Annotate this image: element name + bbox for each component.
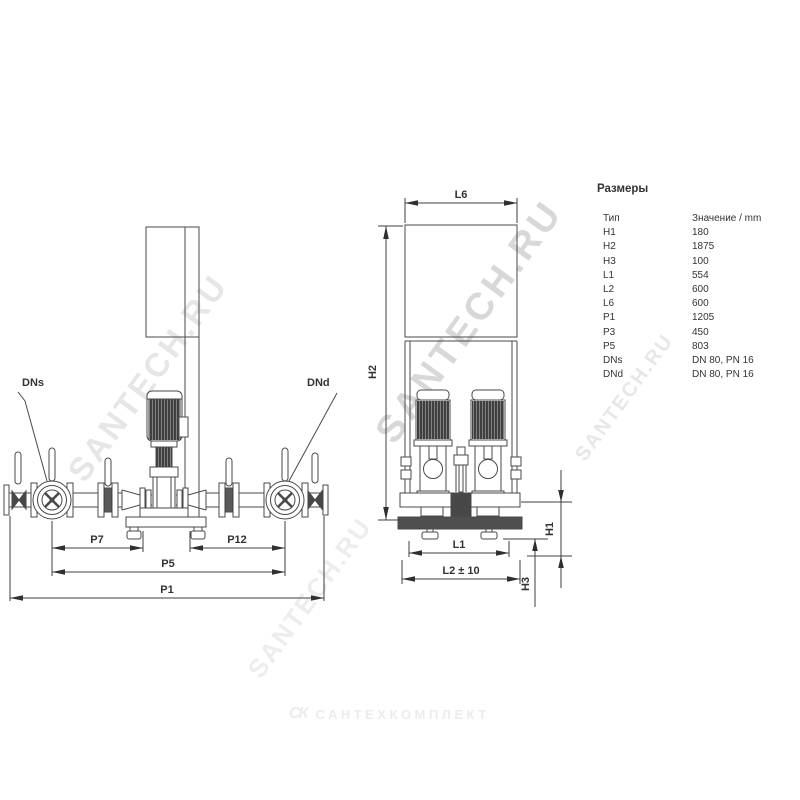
table-row: H1180 <box>597 226 797 240</box>
dim-l6: L6 <box>455 189 468 201</box>
footer-logo: СК САНТЕХКОМПЛЕКТ <box>289 705 490 723</box>
table-row: DNdDN 80, PN 16 <box>597 368 797 382</box>
table-row: P3450 <box>597 326 797 340</box>
table-row: H3100 <box>597 255 797 269</box>
dim-h1: H1 <box>544 522 556 536</box>
side-view <box>398 225 522 539</box>
drawing-canvas: SANTECH.RU SANTECH.RU SANTECH.RU SANTECH… <box>0 0 800 800</box>
label-dnd: DNd <box>307 377 330 389</box>
table-row: P11205 <box>597 311 797 325</box>
dim-p12: P12 <box>227 534 247 546</box>
dimensions-table-title: Размеры <box>597 183 797 195</box>
table-row: L6600 <box>597 297 797 311</box>
side-view-pump-2 <box>469 390 507 496</box>
table-header-value: Значение / mm <box>692 212 797 226</box>
dim-p5: P5 <box>161 558 174 570</box>
dim-h3: H3 <box>520 577 532 591</box>
pump-set-technical-drawing <box>0 0 800 800</box>
label-dns: DNs <box>22 377 44 389</box>
table-header-row: Тип Значение / mm <box>597 212 797 226</box>
dim-l1: L1 <box>453 539 466 551</box>
table-row: L2600 <box>597 283 797 297</box>
side-view-pump-1 <box>414 390 452 496</box>
table-row: H21875 <box>597 240 797 254</box>
front-view <box>4 227 337 539</box>
dimensions-table: Размеры Тип Значение / mm H1180 H21875 H… <box>597 183 797 382</box>
table-header-type: Тип <box>603 212 692 226</box>
dim-l2: L2 ± 10 <box>442 565 479 577</box>
dim-p1: P1 <box>160 584 173 596</box>
table-row: L1554 <box>597 269 797 283</box>
table-row: DNsDN 80, PN 16 <box>597 354 797 368</box>
dim-p7: P7 <box>90 534 103 546</box>
santehkomplekt-logo-text: САНТЕХКОМПЛЕКТ <box>315 707 489 722</box>
dim-h2: H2 <box>367 365 379 379</box>
santehkomplekt-logo-icon: СК <box>289 705 306 723</box>
table-row: P5803 <box>597 340 797 354</box>
